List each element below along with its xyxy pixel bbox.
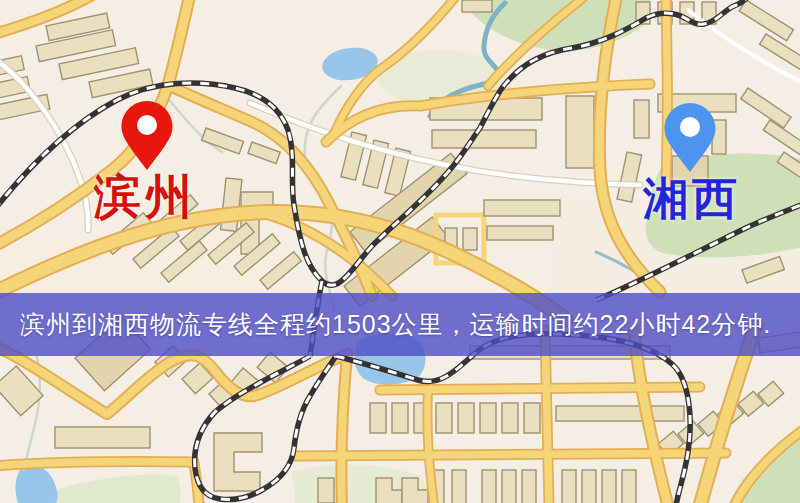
logistics-route-map: 滨州 湘西 滨州到湘西物流专线全程约1503公里，运输时间约22小时42分钟. [0,0,800,503]
origin-label: 滨州 [94,174,196,221]
info-banner: 滨州到湘西物流专线全程约1503公里，运输时间约22小时42分钟. [0,293,800,356]
origin-pin-icon [118,99,176,173]
map-background [0,0,800,503]
destination-pin-icon [661,101,719,175]
route-summary-text: 滨州到湘西物流专线全程约1503公里，运输时间约22小时42分钟. [20,308,771,341]
destination-label: 湘西 [643,177,741,222]
